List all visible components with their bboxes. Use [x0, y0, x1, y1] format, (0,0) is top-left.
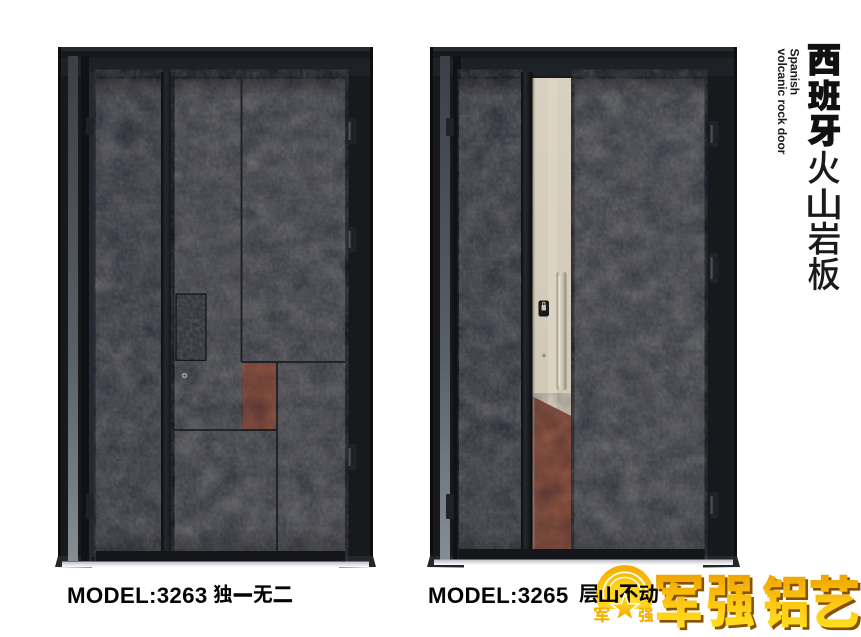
svg-text:MODEL:3265: MODEL:3265 [428, 583, 569, 608]
svg-text:MODEL:3263: MODEL:3263 [67, 583, 208, 608]
svg-text:Spanishvolcanic rock door: Spanishvolcanic rock door [775, 49, 802, 155]
